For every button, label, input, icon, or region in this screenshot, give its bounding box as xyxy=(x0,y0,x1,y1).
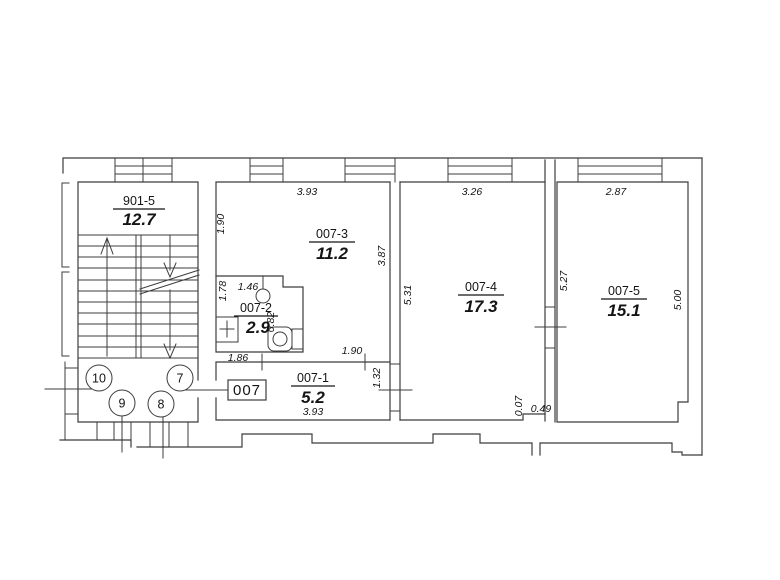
window-room5 xyxy=(578,158,662,182)
dim-room4-top: 3.26 xyxy=(462,186,483,198)
dim-room1-bottom: 3.93 xyxy=(303,406,324,418)
exterior-walls xyxy=(60,158,702,455)
room3-code: 007-3 xyxy=(316,227,348,241)
landing-west-wall xyxy=(65,362,78,440)
dim-room3-right: 3.87 xyxy=(376,245,388,267)
dim-room3-left: 1.90 xyxy=(215,214,227,235)
window-room4 xyxy=(448,158,512,182)
landing-markers: 10 7 9 8 xyxy=(45,365,228,458)
dim-room3-top: 3.93 xyxy=(297,186,318,198)
dim-room4-left: 5.31 xyxy=(402,285,414,305)
marker-10-number: 10 xyxy=(92,372,106,386)
dim-room4-right: 5.27 xyxy=(558,270,570,292)
stair-treads xyxy=(78,235,198,358)
marker-7-number: 7 xyxy=(177,372,184,386)
room1-code: 007-1 xyxy=(297,371,329,385)
toilet-bowl-circle xyxy=(273,332,287,346)
dim-room2-bottom: 1.86 xyxy=(228,352,249,364)
wall-room3-room4 xyxy=(390,182,400,420)
dim-room2-mid: 0.82 xyxy=(265,312,277,333)
dim-room5-top: 2.87 xyxy=(605,186,628,198)
marker-8-number: 8 xyxy=(158,398,165,412)
floor-plan-page: 901-5 12.7 10 7 9 8 xyxy=(0,0,780,580)
room4-area: 17.3 xyxy=(464,297,498,316)
room5-area: 15.1 xyxy=(607,301,640,320)
dim-room1-opening: 1.90 xyxy=(342,345,363,357)
door-room1-room4 xyxy=(379,364,412,411)
sink-cross-icon xyxy=(220,321,234,337)
dim-room2-left: 1.78 xyxy=(217,281,229,302)
window-stairwell xyxy=(115,158,172,182)
dim-room1-door: 1.32 xyxy=(371,368,383,389)
unit-number-label: 007 xyxy=(233,382,261,399)
dim-room4-step-h: 0.07 xyxy=(513,395,525,417)
wall-room4-room5 xyxy=(545,160,555,422)
room4-code: 007-4 xyxy=(465,280,497,294)
floor-plan-drawing: 901-5 12.7 10 7 9 8 xyxy=(0,0,780,580)
windows xyxy=(115,158,662,182)
room5: 007-5 15.1 xyxy=(557,182,688,422)
stair-up-arrow xyxy=(101,238,113,356)
stairwell-code: 901-5 xyxy=(123,194,155,208)
stair-flight-divider xyxy=(136,235,141,358)
room5-code: 007-5 xyxy=(608,284,640,298)
stairwell-area: 12.7 xyxy=(122,210,157,229)
dim-room4-step-w: 0.49 xyxy=(531,403,552,415)
toilet-tank-icon xyxy=(292,329,303,349)
entry-steps xyxy=(97,422,188,447)
dim-room2-top: 1.46 xyxy=(238,281,259,293)
window-room3-left xyxy=(250,158,283,182)
room1-area: 5.2 xyxy=(301,388,325,407)
room4: 007-4 17.3 xyxy=(400,160,566,422)
left-dimension-brackets xyxy=(62,183,69,356)
exterior-bottom-wall xyxy=(60,434,702,455)
door-room4-room5 xyxy=(535,307,566,348)
marker-9-number: 9 xyxy=(119,397,126,411)
stairwell: 901-5 12.7 10 7 9 8 xyxy=(45,182,228,458)
room3-area: 11.2 xyxy=(316,244,348,263)
window-room3-right xyxy=(345,158,395,182)
dim-room5-right: 5.00 xyxy=(672,290,684,311)
stair-down-arrow-upper xyxy=(164,235,176,277)
